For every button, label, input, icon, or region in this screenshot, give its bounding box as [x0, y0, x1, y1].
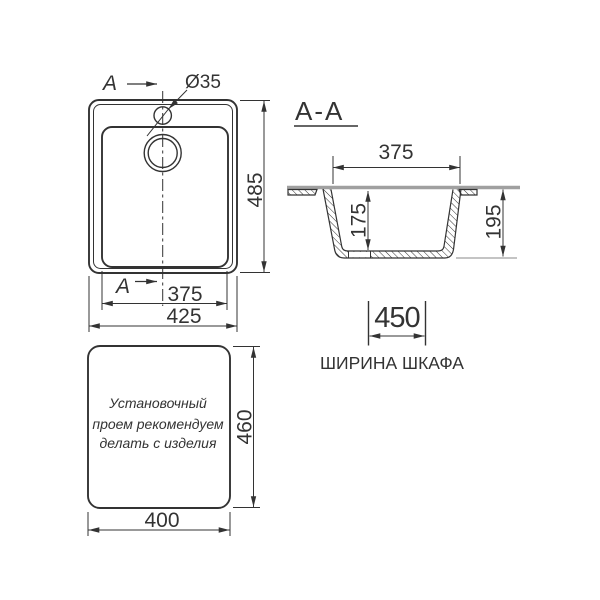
dim-cutout-height-460: 460: [233, 347, 260, 508]
section-view-aa: A-A 375 175 195: [287, 96, 520, 258]
drawing-page: A A Ø35 485 375 425 A-A: [0, 0, 600, 600]
faucet-hole-diameter-label: Ø35: [185, 72, 221, 93]
section-letter-top: A: [101, 72, 117, 95]
section-title: A-A: [295, 96, 344, 126]
cutout-height-value: 460: [234, 409, 257, 444]
dim-depth-175: 175: [348, 191, 371, 250]
drain-outlet-gap: [349, 252, 371, 257]
top-view-overall-width-value: 425: [166, 305, 201, 328]
dim-section-top-width-375: 375: [333, 141, 460, 184]
section-height-value: 195: [483, 204, 506, 239]
top-view-bowl-width-value: 375: [167, 283, 202, 306]
section-letter-bottom: A: [114, 275, 130, 298]
cutout-note-line3: делать с изделия: [100, 435, 217, 451]
dim-height-485: 485: [240, 101, 270, 273]
cutout-template: Установочный проем рекомендуем делать с …: [88, 346, 260, 536]
cutout-width-value: 400: [144, 509, 179, 532]
sink-top-view: A A Ø35 485 375 425: [89, 72, 270, 332]
dim-cutout-width-400: 400: [88, 509, 230, 536]
countertop-left-stub: [288, 190, 317, 196]
cabinet-width-indicator: 450 ШИРИНА ШКАФА: [320, 301, 464, 373]
sink-bowl-outline: [102, 127, 228, 267]
cabinet-width-value: 450: [374, 302, 419, 334]
top-view-height-value: 485: [244, 172, 267, 207]
countertop-right-stub: [459, 190, 477, 196]
cabinet-width-caption: ШИРИНА ШКАФА: [320, 353, 464, 373]
bowl-wall-outer-profile: [323, 189, 461, 258]
dim-section-height-195: 195: [456, 190, 517, 259]
bowl-wall-hatch: [323, 189, 461, 258]
cutout-note-line2: проем рекомендуем: [92, 416, 224, 432]
technical-drawing: A A Ø35 485 375 425 A-A: [0, 0, 600, 600]
section-depth-value: 175: [348, 203, 371, 238]
section-top-width-value: 375: [378, 141, 413, 164]
faucet-hole-leader-line: [147, 90, 187, 136]
cutout-note-line1: Установочный: [108, 395, 207, 411]
